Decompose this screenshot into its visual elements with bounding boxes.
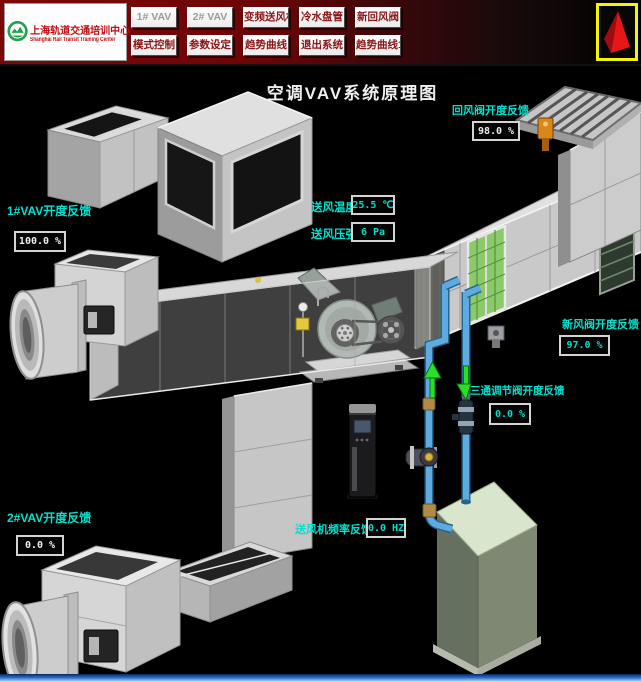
logo-emblem-icon: [7, 17, 28, 47]
duct-sensor-dot: [255, 277, 261, 283]
open-duct-panel: [168, 542, 292, 622]
vav2-feedback-value: 0.0 %: [16, 535, 64, 556]
vav1-feedback-label: 1#VAV开度反馈: [7, 202, 91, 219]
flow-arrows: [424, 362, 471, 400]
vav1-feedback-value: 100.0 %: [14, 231, 66, 252]
return-damper-actuator: [538, 118, 553, 151]
logo-title-cn: 上海轨道交通培训中心: [30, 22, 124, 37]
logo-title-en: Shanghai Rail Transit Training Center: [30, 37, 105, 43]
coil-valve-actuator: [488, 326, 504, 348]
cooling-coil: [468, 226, 505, 324]
three-way-valve-feedback-label: 三通调节阀开度反馈: [470, 383, 565, 398]
vav2-terminal: [0, 546, 180, 682]
logo: 上海轨道交通培训中心 Shanghai Rail Transit Trainin…: [4, 3, 127, 61]
fan-frequency-label: 送风机频率反馈: [295, 521, 372, 537]
chiller-unit: [433, 482, 541, 676]
vfd-drive: [347, 404, 378, 499]
diagram-title: 空调VAV系统原理图: [0, 79, 641, 104]
pipe-fitting: [423, 398, 435, 410]
three-way-valve: [452, 394, 474, 434]
supply-pressure-value: 6 Pa: [351, 222, 395, 242]
vfd-display: [354, 420, 371, 433]
pressure-sensor: [296, 318, 309, 330]
nav-button-coil[interactable]: 冷水盘管: [299, 7, 345, 28]
nav-button-mode[interactable]: 模式控制: [131, 35, 177, 56]
return-damper-feedback-label: 回风阀开度反馈: [452, 102, 529, 118]
nav-button-exit[interactable]: 退出系统: [299, 35, 345, 56]
temperature-sensor: [299, 303, 308, 312]
kingview-brand-logo: [596, 3, 638, 61]
nav-button-vfd-fan[interactable]: 变频送风机: [243, 7, 289, 28]
nav-button-1vav[interactable]: 1# VAV: [131, 7, 177, 28]
return-damper-feedback-value: 98.0 %: [472, 121, 520, 141]
fan-frequency-value: 0.0 HZ: [366, 518, 406, 538]
pyramid-icon: [599, 7, 635, 57]
fresh-damper-feedback-value: 97.0 %: [559, 335, 610, 356]
scada-screen: 上海轨道交通培训中心 Shanghai Rail Transit Trainin…: [0, 0, 641, 682]
fresh-damper-feedback-label: 新风阀开度反馈: [562, 316, 639, 332]
bottom-window-edge: [0, 674, 641, 682]
header-bar: 上海轨道交通培训中心 Shanghai Rail Transit Trainin…: [0, 0, 641, 66]
nav-button-2vav[interactable]: 2# VAV: [187, 7, 233, 28]
vav1-actuator: [84, 306, 114, 334]
duct-upper-left: [48, 106, 168, 208]
nav-button-trend1[interactable]: 趋势曲线1#: [355, 35, 401, 56]
nav-button-trend[interactable]: 趋势曲线: [243, 35, 289, 56]
nav-buttons: 1# VAV 2# VAV 变频送风机 冷水盘管 新回风阀 模式控制 参数设定 …: [131, 7, 401, 56]
pipe-elbow-fitting: [423, 504, 436, 517]
three-way-valve-feedback-value: 0.0 %: [489, 403, 531, 425]
nav-button-dampers[interactable]: 新回风阀: [355, 7, 401, 28]
nav-button-params[interactable]: 参数设定: [187, 35, 233, 56]
vav2-feedback-label: 2#VAV开度反馈: [7, 509, 91, 526]
vav2-actuator: [84, 630, 118, 662]
logo-text: 上海轨道交通培训中心 Shanghai Rail Transit Trainin…: [30, 22, 124, 43]
duct-elbow-junction: [158, 92, 312, 262]
supply-temp-value: 25.5 ℃: [351, 195, 395, 215]
